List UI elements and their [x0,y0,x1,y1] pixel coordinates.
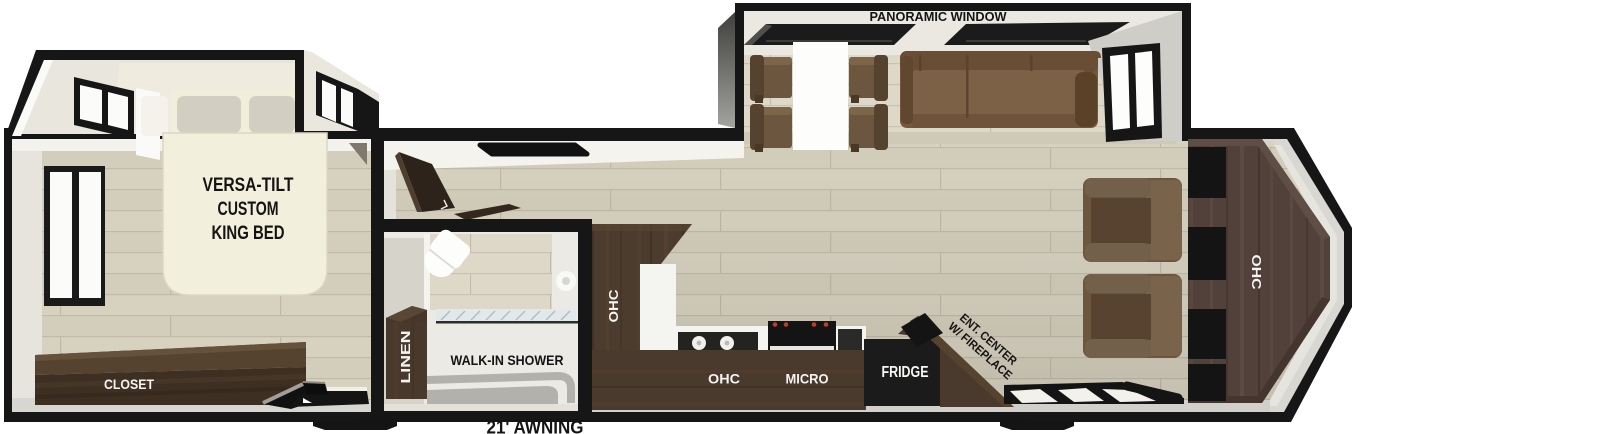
svg-text:WALK-IN SHOWER: WALK-IN SHOWER [451,352,564,368]
svg-text:VERSA-TILT: VERSA-TILT [203,175,294,196]
svg-text:PANORAMIC WINDOW: PANORAMIC WINDOW [870,10,1007,24]
svg-text:FRIDGE: FRIDGE [882,364,929,381]
svg-text:MICRO: MICRO [786,371,829,387]
svg-text:OHC: OHC [606,289,621,323]
svg-text:LINEN: LINEN [399,331,413,384]
svg-text:CUSTOM: CUSTOM [218,199,279,220]
svg-text:OHC: OHC [1249,255,1264,291]
svg-text:KING BED: KING BED [212,223,285,244]
svg-text:OHC: OHC [708,371,740,387]
svg-text:CLOSET: CLOSET [104,376,154,392]
svg-text:21' AWNING: 21' AWNING [487,418,584,434]
